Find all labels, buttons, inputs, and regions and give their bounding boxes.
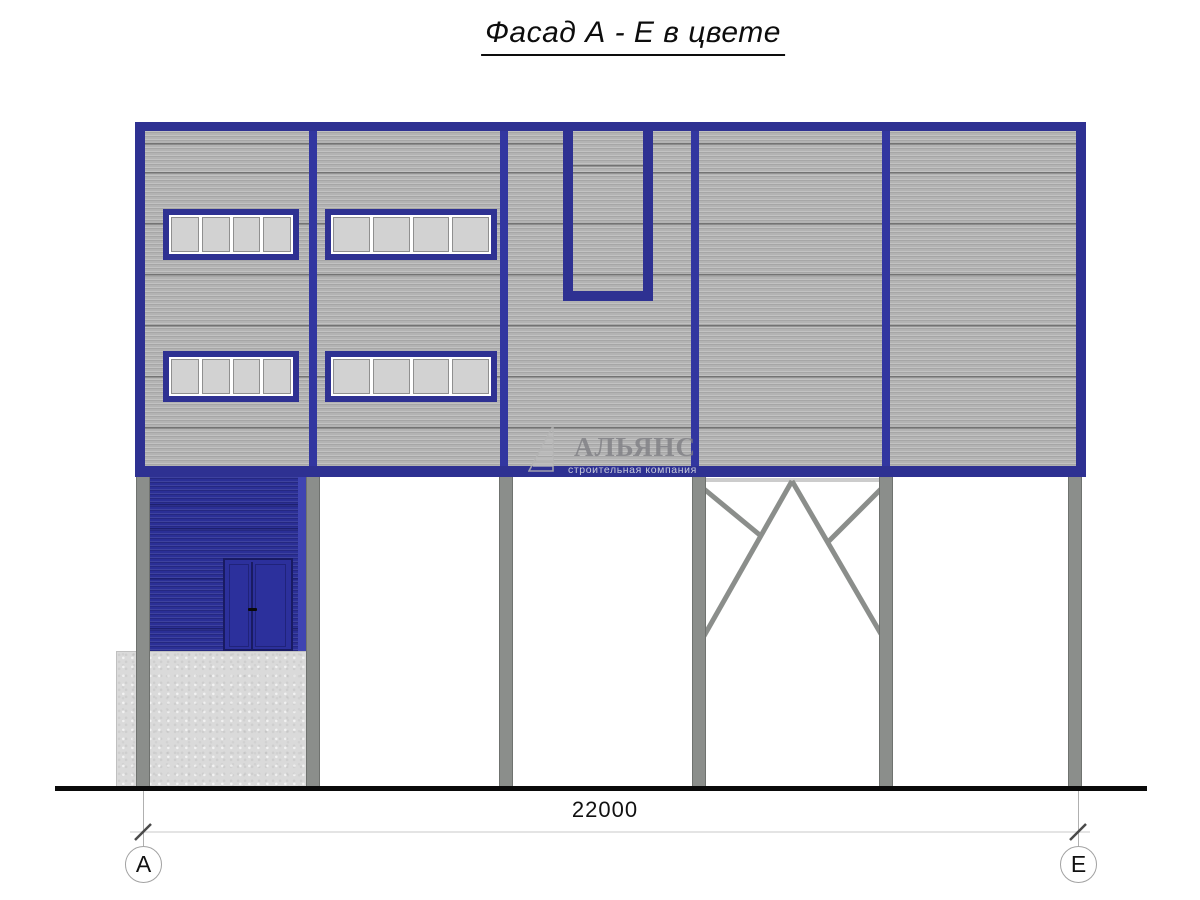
axis-marker-a-label: А bbox=[136, 851, 151, 878]
steel-column bbox=[499, 477, 513, 787]
panel-divider bbox=[691, 131, 699, 466]
roof-recess bbox=[563, 131, 653, 301]
window-pane bbox=[333, 359, 370, 394]
steel-column bbox=[692, 477, 706, 787]
window-pane bbox=[452, 217, 489, 252]
window-pane bbox=[171, 217, 199, 252]
facade-drawing: Фасад А - Е в цвете bbox=[0, 0, 1200, 900]
dimension-label: 22000 bbox=[572, 797, 638, 823]
dimension-line bbox=[130, 831, 1090, 833]
window-pane bbox=[373, 217, 410, 252]
window bbox=[163, 351, 299, 402]
window-pane bbox=[171, 359, 199, 394]
steel-column bbox=[1068, 477, 1082, 787]
steel-column bbox=[136, 477, 150, 787]
door-split-line bbox=[251, 562, 253, 649]
axis-marker-a: А bbox=[125, 846, 162, 883]
axis-marker-e-label: Е bbox=[1071, 851, 1086, 878]
panel-divider bbox=[882, 131, 890, 466]
brace-diagonal bbox=[829, 489, 881, 541]
window-pane bbox=[452, 359, 489, 394]
panel-divider bbox=[500, 131, 508, 466]
steel-column bbox=[306, 477, 320, 787]
window-pane bbox=[263, 359, 291, 394]
brace-diagonal bbox=[792, 481, 881, 634]
panel-divider bbox=[309, 131, 317, 466]
window bbox=[163, 209, 299, 260]
extension-line bbox=[143, 791, 144, 846]
axis-marker-e: Е bbox=[1060, 846, 1097, 883]
window-pane bbox=[233, 217, 261, 252]
building-facade bbox=[135, 122, 1086, 477]
brace-diagonal bbox=[704, 481, 792, 636]
drawing-title: Фасад А - Е в цвете bbox=[481, 16, 785, 56]
window bbox=[325, 351, 497, 402]
window-pane bbox=[413, 359, 450, 394]
window bbox=[325, 209, 497, 260]
steel-column bbox=[879, 477, 893, 787]
window-pane bbox=[263, 217, 291, 252]
brace-diagonal bbox=[704, 489, 761, 536]
window-pane bbox=[413, 217, 450, 252]
door-leaf bbox=[229, 564, 249, 647]
window-pane bbox=[202, 359, 230, 394]
entrance-door bbox=[223, 558, 293, 651]
window-pane bbox=[202, 217, 230, 252]
window-pane bbox=[233, 359, 261, 394]
ground-line bbox=[55, 786, 1147, 791]
window-pane bbox=[333, 217, 370, 252]
window-pane bbox=[373, 359, 410, 394]
door-leaf bbox=[255, 564, 286, 647]
door-handle-icon bbox=[248, 608, 257, 611]
extension-line bbox=[1078, 791, 1079, 846]
